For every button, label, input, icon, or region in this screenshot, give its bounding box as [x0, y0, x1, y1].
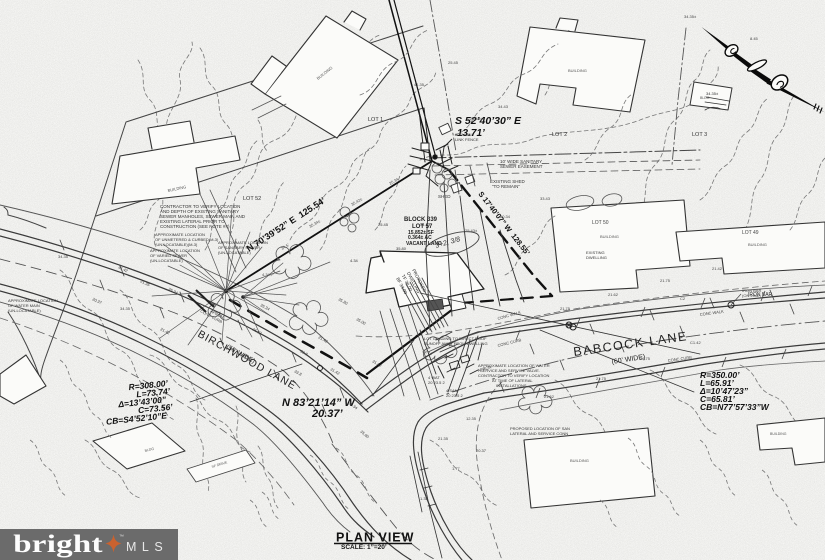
svg-text:S 52’40’30” E: S 52’40’30” E	[455, 115, 522, 127]
svg-text:21.75: 21.75	[560, 306, 571, 311]
svg-text:(UN-LOCATABLE): (UN-LOCATABLE)	[218, 250, 251, 255]
svg-text:LOT 52: LOT 52	[243, 196, 261, 202]
svg-text:20.34: 20.34	[500, 214, 511, 219]
svg-text:(UN-LOCATABLE): (UN-LOCATABLE)	[150, 258, 183, 263]
svg-text:34.43: 34.43	[420, 222, 431, 227]
svg-text:33.43: 33.43	[540, 196, 551, 201]
svg-text:C1.42: C1.42	[690, 340, 701, 345]
svg-text:25.43±: 25.43±	[465, 228, 478, 233]
svg-text:1.77: 1.77	[452, 466, 461, 471]
svg-text:LOT 50: LOT 50	[592, 220, 609, 226]
svg-text:(ON LINE): (ON LINE)	[742, 293, 761, 298]
svg-text:34.35±: 34.35±	[706, 91, 719, 96]
svg-text:20.37’: 20.37’	[311, 408, 344, 420]
svg-text:35.80: 35.80	[396, 246, 407, 251]
svg-text:LOT 3: LOT 3	[692, 132, 707, 138]
svg-text:21.62: 21.62	[544, 394, 555, 399]
svg-text:LOT 2: LOT 2	[552, 132, 567, 138]
svg-text:4.34.7′: 4.34.7′	[262, 272, 274, 277]
svg-text:LOT 1: LOT 1	[368, 117, 383, 123]
svg-text:INSTALLATIONS.: INSTALLATIONS.	[496, 383, 528, 388]
svg-text:BUILDING: BUILDING	[570, 458, 589, 463]
svg-text:LOT 49: LOT 49	[742, 230, 759, 236]
svg-text:25.45: 25.45	[378, 222, 389, 227]
svg-text:BUILDING: BUILDING	[770, 432, 787, 436]
svg-text:21.35: 21.35	[438, 436, 449, 441]
svg-text:21.42: 21.42	[712, 266, 723, 271]
svg-text:34.35: 34.35	[120, 306, 131, 311]
svg-text:21.75: 21.75	[640, 356, 651, 361]
svg-text:LATERAL AND SERVICE CONN: LATERAL AND SERVICE CONN	[510, 431, 568, 436]
svg-text:21.62: 21.62	[608, 292, 619, 297]
svg-text:“TO REMAIN”: “TO REMAIN”	[492, 184, 520, 189]
svg-text:CB=N77’57’33”W: CB=N77’57’33”W	[700, 402, 770, 412]
svg-text:20 23.5 2: 20 23.5 2	[446, 393, 463, 398]
svg-text:34.43: 34.43	[498, 104, 509, 109]
svg-text:BUILDING: BUILDING	[568, 68, 587, 73]
svg-text:bright: bright	[13, 531, 103, 558]
svg-text:(UN-LOCATABLE): (UN-LOCATABLE)	[8, 308, 41, 313]
svg-text:21.75: 21.75	[660, 278, 671, 283]
svg-text:MLS: MLS	[126, 540, 168, 554]
svg-text:21.75: 21.75	[596, 376, 607, 381]
svg-text:1.35: 1.35	[420, 496, 429, 501]
svg-text:LINK FENCE: LINK FENCE	[455, 137, 479, 142]
svg-text:C2: C2	[680, 296, 686, 301]
svg-text:20 23.5 2: 20 23.5 2	[428, 380, 445, 385]
svg-text:34.35: 34.35	[58, 254, 69, 259]
svg-text:™: ™	[119, 534, 124, 540]
svg-text:20.37: 20.37	[476, 448, 487, 453]
svg-text:PLAN VIEW: PLAN VIEW	[336, 531, 414, 545]
svg-text:8.45: 8.45	[750, 36, 759, 41]
svg-text:SHED: SHED	[438, 194, 451, 199]
svg-text:RUNOFF AWAY FROM DWELLING: RUNOFF AWAY FROM DWELLING	[424, 341, 488, 346]
svg-text:BLDG: BLDG	[700, 96, 710, 100]
svg-text:DWELLING: DWELLING	[586, 255, 607, 260]
svg-text:SEWER EASEMENT: SEWER EASEMENT	[500, 164, 543, 169]
svg-text:SCALE: 1”=20’: SCALE: 1”=20’	[341, 544, 387, 551]
svg-text:BUILDING: BUILDING	[748, 242, 767, 247]
svg-text:41.35: 41.35	[414, 82, 425, 87]
svg-text:12.35: 12.35	[466, 416, 477, 421]
svg-text:(UN-LOCATABLE)(M-3): (UN-LOCATABLE)(M-3)	[155, 242, 198, 247]
svg-text:25.45: 25.45	[448, 60, 459, 65]
svg-text:25.43±: 25.43±	[470, 116, 483, 121]
svg-text:4.34: 4.34	[350, 258, 359, 263]
svg-text:CONSTRUCTION (SEE NOTE #4): CONSTRUCTION (SEE NOTE #4)	[160, 224, 230, 229]
svg-text:34.35±: 34.35±	[684, 14, 697, 19]
svg-text:BUILDING: BUILDING	[600, 234, 619, 239]
